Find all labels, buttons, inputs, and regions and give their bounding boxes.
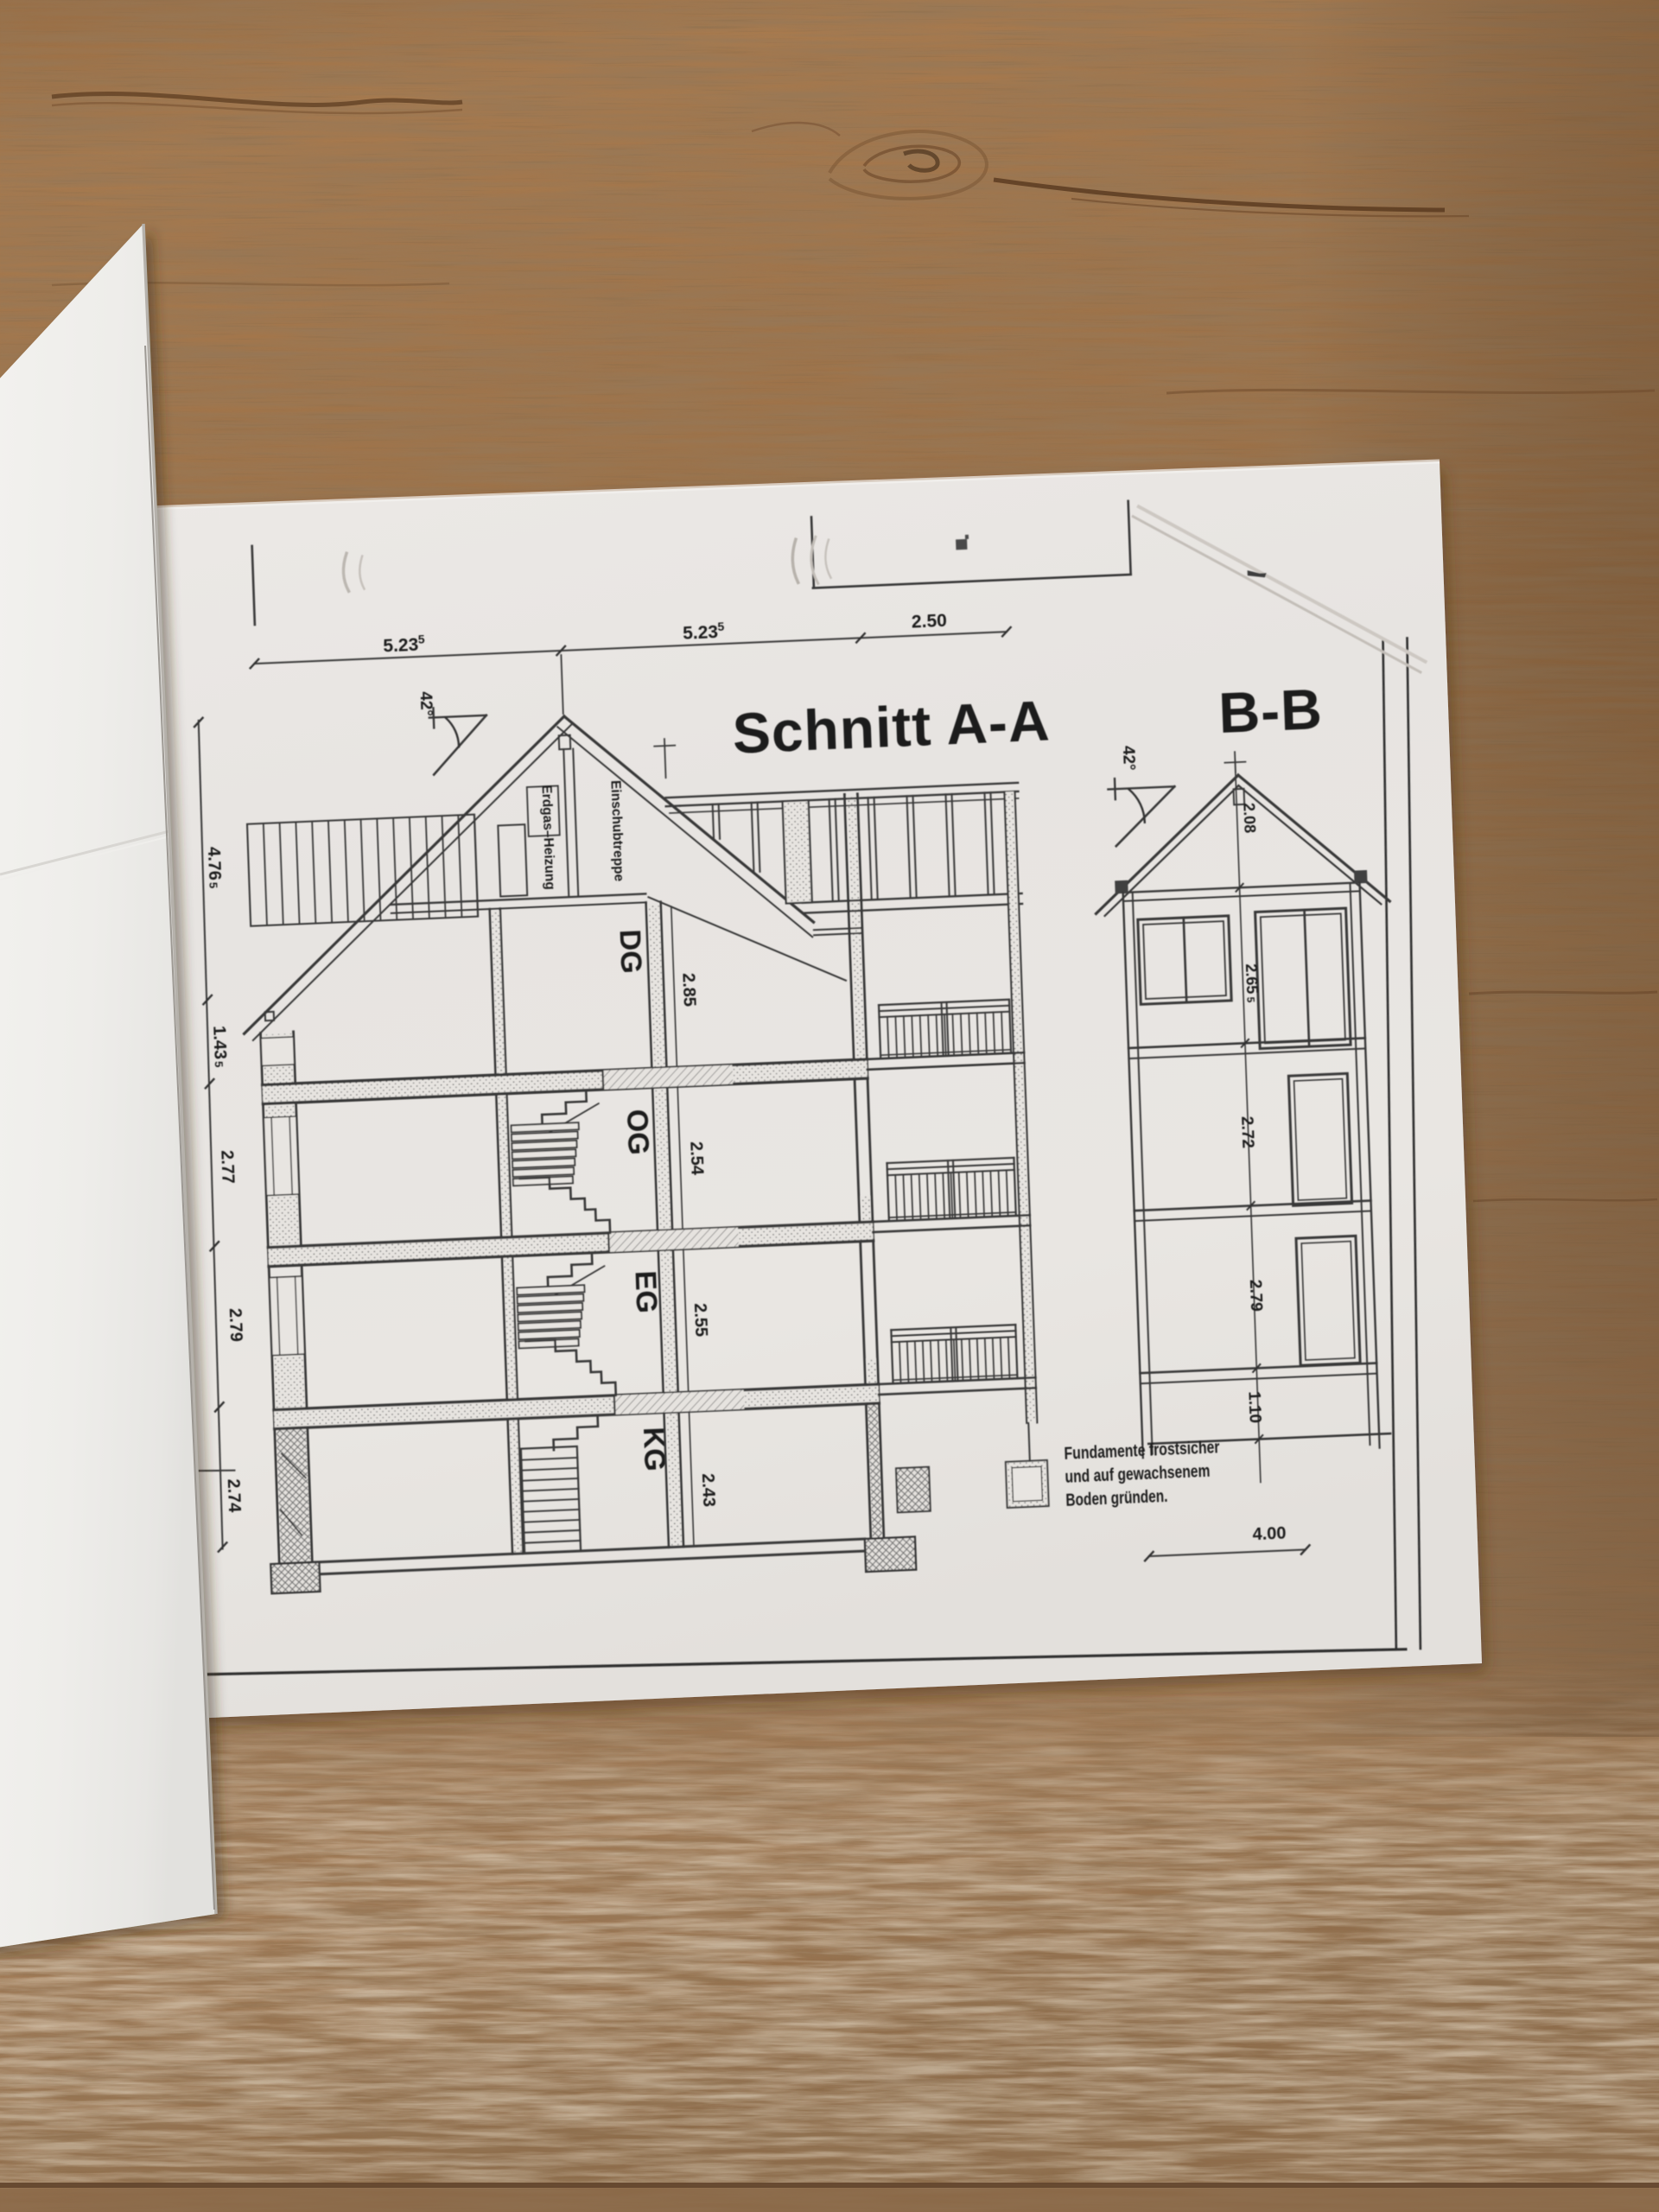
svg-text:Schnitt A-A: Schnitt A-A bbox=[731, 688, 1051, 766]
svg-text:42°: 42° bbox=[416, 691, 435, 717]
svg-text:2.50: 2.50 bbox=[912, 611, 948, 632]
svg-text:2.72: 2.72 bbox=[1237, 1116, 1256, 1148]
svg-text:5: 5 bbox=[1244, 996, 1256, 1003]
svg-text:2.65: 2.65 bbox=[1243, 963, 1261, 995]
svg-text:5: 5 bbox=[213, 1061, 226, 1068]
svg-text:5.23: 5.23 bbox=[383, 635, 419, 657]
svg-text:2.43: 2.43 bbox=[698, 1473, 718, 1508]
svg-text:2.77: 2.77 bbox=[217, 1150, 237, 1185]
svg-text:DG: DG bbox=[613, 929, 648, 975]
svg-text:2.79: 2.79 bbox=[1246, 1279, 1265, 1312]
svg-text:5: 5 bbox=[207, 882, 219, 889]
svg-text:EG: EG bbox=[629, 1270, 664, 1314]
svg-text:1.43: 1.43 bbox=[209, 1026, 229, 1060]
svg-text:2.85: 2.85 bbox=[679, 973, 699, 1007]
svg-text:2.55: 2.55 bbox=[690, 1303, 710, 1338]
svg-text:4.76: 4.76 bbox=[204, 847, 224, 881]
svg-text:OG: OG bbox=[620, 1109, 655, 1156]
svg-text:2.08: 2.08 bbox=[1240, 803, 1258, 834]
svg-text:2.79: 2.79 bbox=[226, 1307, 245, 1342]
svg-text:2.74: 2.74 bbox=[224, 1478, 244, 1514]
svg-text:1.10: 1.10 bbox=[1244, 1391, 1263, 1424]
svg-text:5: 5 bbox=[417, 632, 425, 646]
svg-text:42°: 42° bbox=[1119, 746, 1138, 772]
svg-text:5.23: 5.23 bbox=[683, 622, 719, 644]
svg-text:4.00: 4.00 bbox=[1252, 1523, 1287, 1544]
svg-text:5: 5 bbox=[717, 620, 725, 633]
svg-text:B-B: B-B bbox=[1217, 677, 1324, 745]
svg-text:2.54: 2.54 bbox=[686, 1141, 706, 1177]
